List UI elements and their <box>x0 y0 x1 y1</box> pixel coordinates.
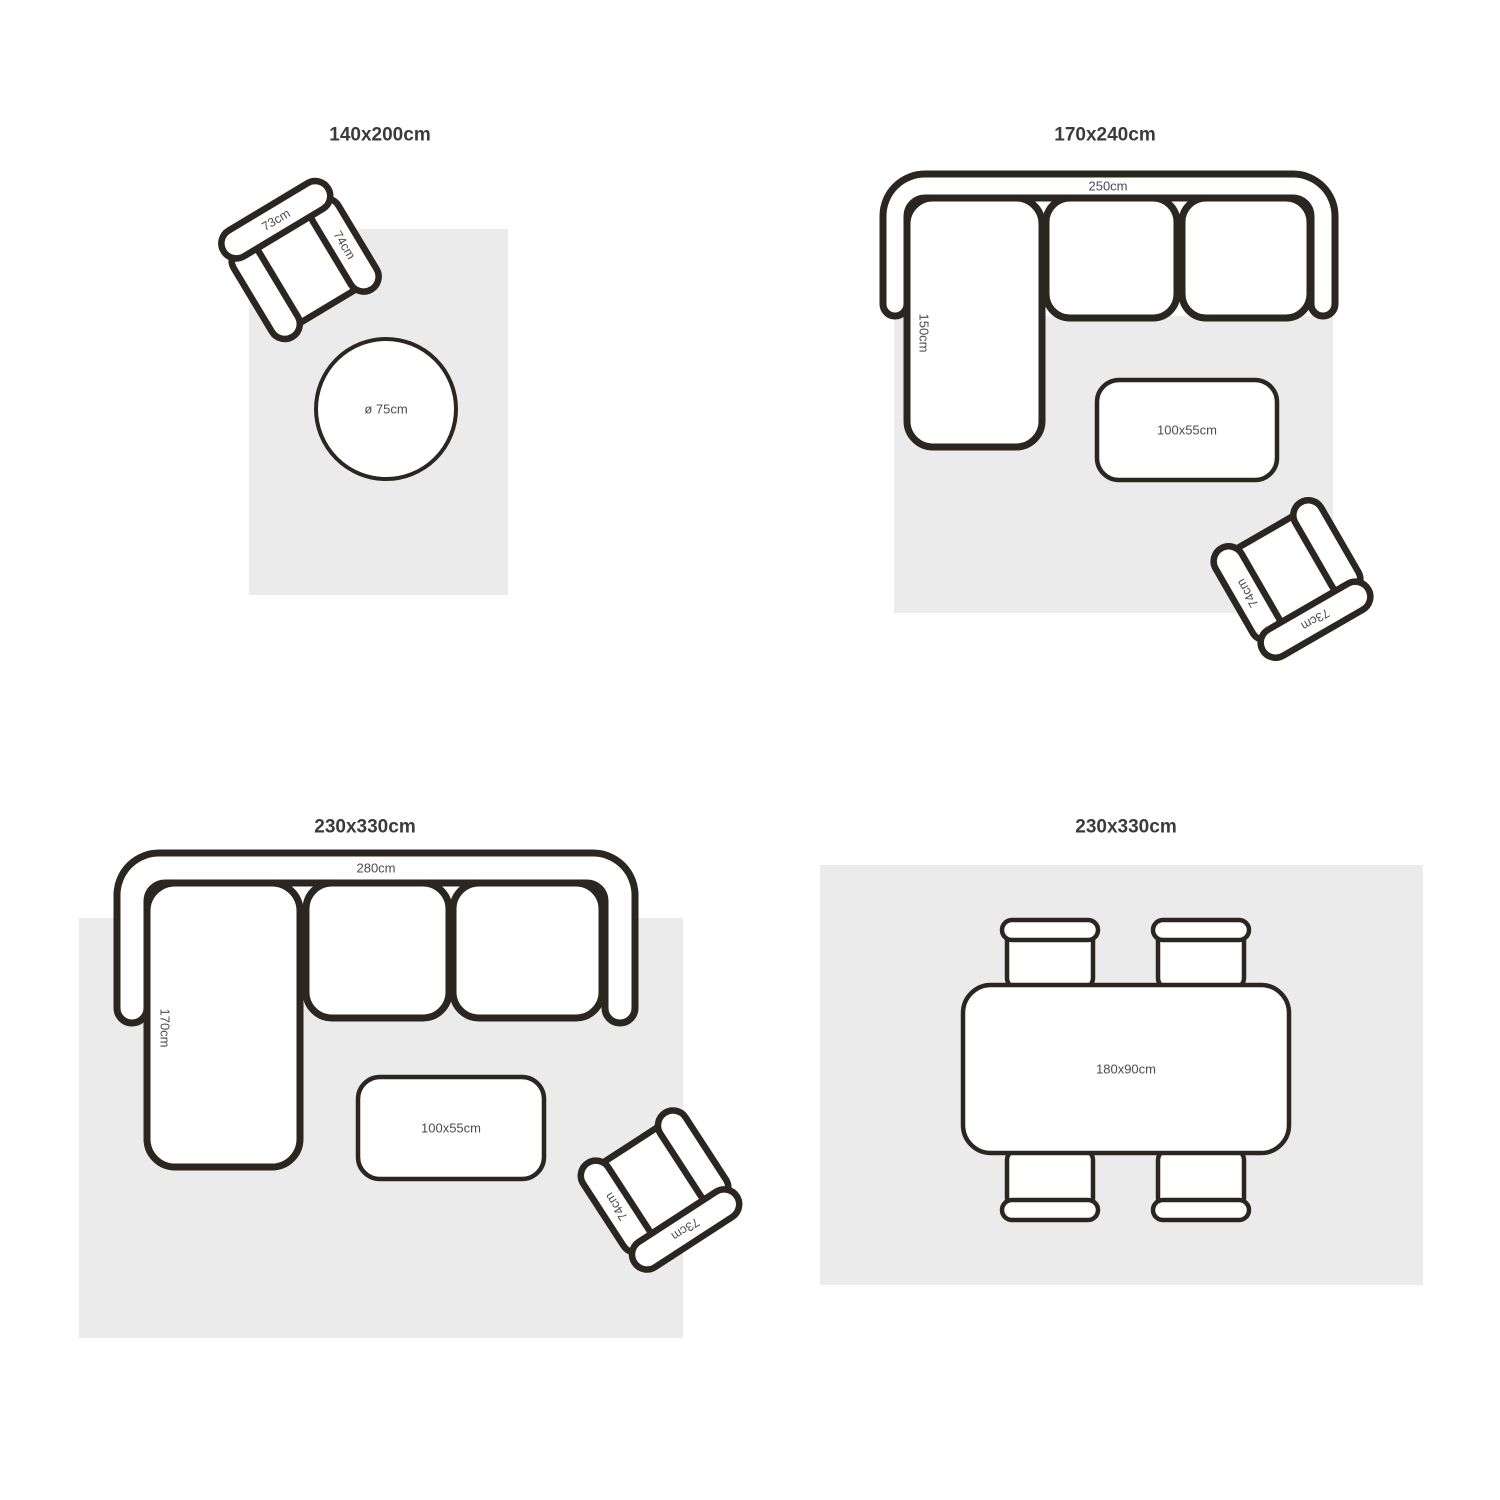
sofa-depth-dimension: 170cm <box>157 1008 172 1047</box>
sofa-cushion <box>453 883 602 1018</box>
size-title: 170x240cm <box>1054 125 1155 146</box>
sofa-width-dimension: 250cm <box>1088 179 1127 194</box>
dining-table: 180x90cm <box>963 985 1289 1153</box>
sofa-width-dimension: 280cm <box>356 861 395 876</box>
sofa-cushion <box>1182 198 1310 318</box>
quadrant-230x330-dining: 230x330cm 180x90cm <box>820 817 1423 1285</box>
size-title: 230x330cm <box>314 817 415 838</box>
size-title: 140x200cm <box>329 125 430 146</box>
round-table-dimension: ø 75cm <box>364 402 407 417</box>
chair-backrest <box>1153 920 1249 940</box>
size-title: 230x330cm <box>1075 817 1176 838</box>
chair-backrest <box>1002 920 1098 940</box>
quadrant-170x240: 170x240cm 250cm 150cm 100x55cm 73cm 74cm <box>883 125 1376 664</box>
size-guide-canvas: 140x200cm 73cm 74cm ø 75cm 170x240cm 250… <box>0 0 1500 1500</box>
coffee-table-dimension: 100x55cm <box>1157 423 1217 438</box>
quadrant-230x330-living: 230x330cm 280cm 170cm 100x55cm 73cm 74cm <box>79 817 745 1338</box>
dining-chair <box>1002 920 1098 988</box>
dining-chair <box>1002 1150 1098 1220</box>
dining-chair <box>1153 920 1249 988</box>
chair-backrest <box>1153 1200 1249 1220</box>
rug-size-guide: 140x200cm 73cm 74cm ø 75cm 170x240cm 250… <box>0 0 1500 1500</box>
coffee-table: 100x55cm <box>1097 380 1277 480</box>
chair-backrest <box>1002 1200 1098 1220</box>
quadrant-140x200: 140x200cm 73cm 74cm ø 75cm <box>216 125 508 595</box>
dining-table-dimension: 180x90cm <box>1096 1062 1156 1077</box>
coffee-table: 100x55cm <box>358 1077 544 1179</box>
sofa-cushion <box>306 883 449 1018</box>
sofa-depth-dimension: 150cm <box>916 313 931 352</box>
coffee-table-dimension: 100x55cm <box>421 1121 481 1136</box>
round-side-table: ø 75cm <box>316 339 456 479</box>
dining-chair <box>1153 1150 1249 1220</box>
sofa-cushion <box>1046 198 1177 318</box>
